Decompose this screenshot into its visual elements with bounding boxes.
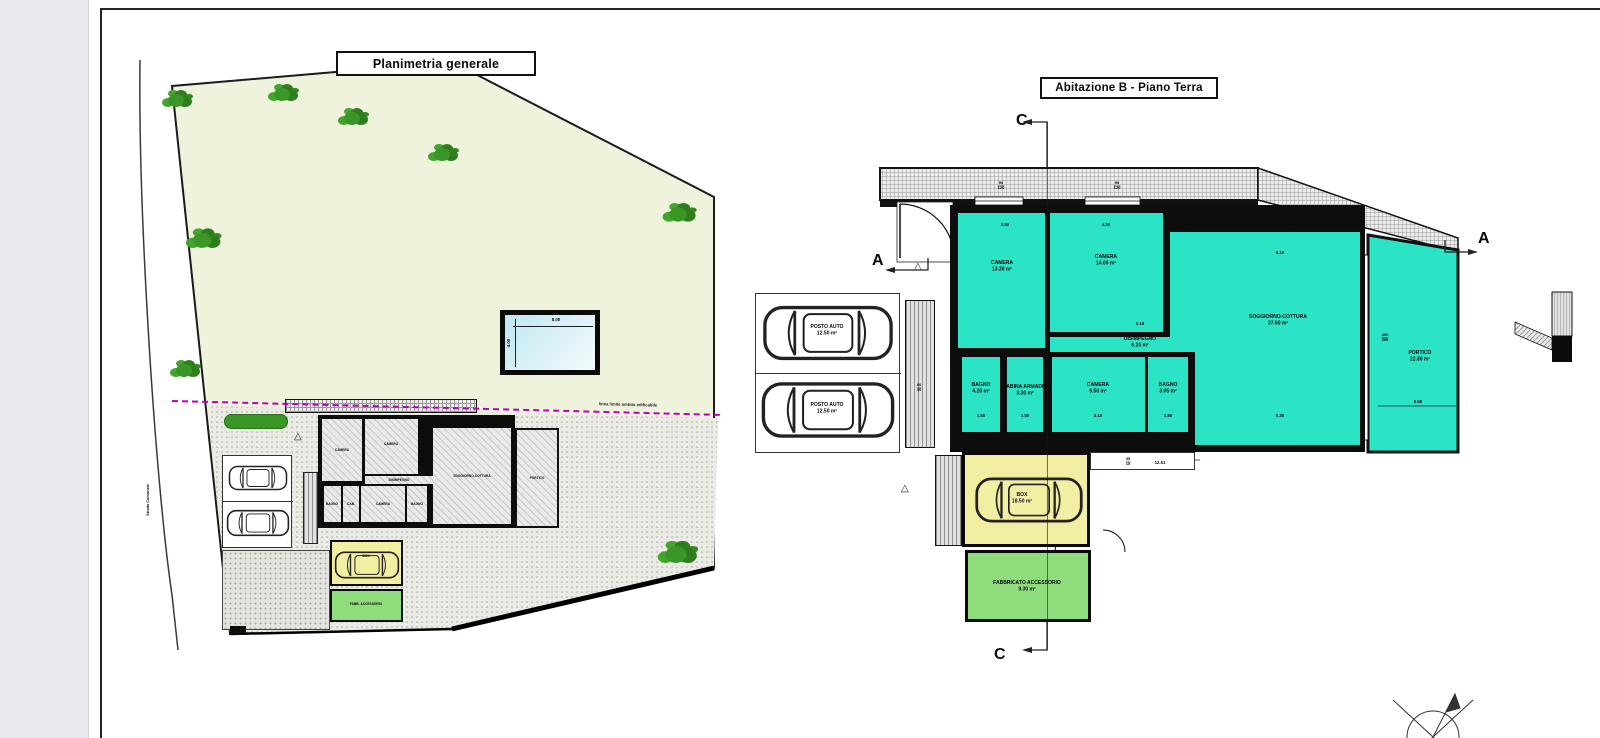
room-area: 22.80 m² [1409,356,1432,363]
mini-room-label: CAMERA [335,448,349,452]
mini-room-label: CAMERA [384,442,398,446]
compass-icon [1393,694,1473,738]
room-area: 13.30 m² [991,266,1013,273]
portico-area [1368,235,1458,452]
room-area: 9.50 m² [1087,388,1109,395]
stall-divider [223,501,293,502]
floor-plan-title-box: Abitazione B - Piano Terra [1040,77,1218,99]
mini-room-label: BAGNO [411,502,423,506]
room-label: BAGNO 3.05 m² [1159,381,1178,394]
pool-width-dim: 8.00 [552,318,560,322]
room-area: 3.30 m² [1003,390,1048,397]
tree-icon [176,364,192,377]
pool-height-dim: 4.00 [507,339,511,347]
room-label: BAGNO 4.20 m² [972,381,991,394]
room-area: 6.10 m² [1124,342,1156,349]
mini-room-label: PORTICO [530,476,545,480]
room-camera-2 [1050,213,1163,332]
room-label: CAMERA 14.00 m² [1095,253,1117,266]
pool-dim-line-h [513,326,593,327]
room-label: CAMERA 13.30 m² [991,259,1013,272]
window-dim-stack: 90 120 [998,181,1005,191]
sheet-border-top [100,8,1600,10]
portico-dim-stack: 400 300 [1382,333,1389,343]
dim-text: 40 [917,388,922,393]
entrance-arrow-icon: △ [914,262,922,272]
dim-text: 3.10 [1094,414,1102,418]
dim-text: 300 [1382,338,1389,343]
mini-room-label: CAMERA [376,502,390,506]
room-label: DISIMPEGNO 6.10 m² [1124,335,1156,348]
section-arrowhead [885,267,895,273]
hedge-icon [224,414,288,429]
mini-room-label: BAGNO [326,502,338,506]
window-dim-stack: 90 120 [1114,181,1121,191]
car-icon [226,503,290,543]
dim-text: 120 [1114,186,1121,191]
accessory-area: 9.30 m² [993,586,1061,593]
parking-label-2: POSTO AUTO 12.50 m² [811,401,844,414]
dim-text: 2.60 [1414,400,1422,404]
room-label: CAMERA 9.50 m² [1087,381,1109,394]
terrace-band [880,168,1258,200]
room-soggiorno-ext [1170,232,1195,352]
edge-fragment-railing [1552,292,1572,336]
dim-text: 5.10 [1276,251,1284,255]
parking-label-1: POSTO AUTO 12.50 m² [811,323,844,336]
step-dim-stack: 35 15 [1126,457,1131,467]
room-area: 14.00 m² [1095,260,1117,267]
mini-room-label: SOGGIORNO-COTTURA [453,474,490,478]
ramp-dim-stack: 80 40 [917,383,922,393]
box-label: BOX 18.50 m² [1012,491,1032,504]
mini-box-label: BOX [362,554,369,558]
mini-room [365,419,418,474]
mini-ramp [303,472,318,544]
room-label: CABINA ARMADIO 3.30 m² [1003,383,1048,396]
drawing-sheet: Planimetria generale [0,0,1600,738]
pool-dim-line-v [515,319,516,367]
room-area: 37.60 m² [1249,320,1307,327]
section-c-hook-bottom [1032,622,1047,650]
window-edge-strip [0,0,89,738]
sheet-border-left [100,8,102,738]
dim-text: 5.30 [1276,414,1284,418]
dim-text: 1.50 [977,414,985,418]
road-label: Strada Comunale [146,484,150,516]
box-area: 18.50 m² [1012,498,1032,505]
room-label: PORTICO 22.80 m² [1409,349,1432,362]
room-area: 4.20 m² [972,388,991,395]
tree-icon [434,148,450,161]
mini-room-label: DISIMPEGNO [389,478,410,482]
tree-icon [274,88,290,101]
wall-stub [230,626,246,635]
tree-icon [168,94,184,107]
tree-icon [666,546,687,563]
room-camera-1 [958,213,1045,348]
mini-accessory-label: FABB. ACCESSORIO [350,602,382,606]
entrance-recess [897,202,953,262]
site-plan-drawing [120,50,730,650]
room-area: 3.05 m² [1159,388,1178,395]
pool [500,310,600,375]
section-c-top: C [1016,112,1028,130]
box-ramp [935,455,962,546]
dim-text: 15 [1126,462,1131,467]
entrance-arrow-icon: △ [294,432,302,442]
edge-fragment-ground [1515,322,1552,350]
stall-divider [756,373,901,374]
tree-icon [193,233,211,248]
section-a-right: A [1478,230,1490,248]
section-arrowhead [1022,647,1032,653]
dwelling-block [950,205,1365,452]
mini-room-label: CAB. [347,502,355,506]
tree-icon [344,112,360,125]
tree-icon [669,207,687,221]
edge-fragment-base [1552,336,1572,362]
exterior-step [1090,452,1195,470]
mini-driveway [222,550,330,630]
dim-text: 3.10 [1136,322,1144,326]
dim-text: 120 [998,186,1005,191]
room-label: SOGGIORNO-COTTURA 37.60 m² [1249,313,1307,326]
car-icon [228,461,288,495]
car-icon [334,548,400,582]
road-line [140,60,178,650]
dim-text: 1.50 [1164,414,1172,418]
dim-text: 3.80 [1001,223,1009,227]
site-plan-title-box: Planimetria generale [336,51,536,76]
accessory-label: FABBRICATO ACCESSORIO 9.30 m² [993,579,1061,592]
ramp-strip [905,300,935,448]
dim-text: 12.51 [1155,461,1166,465]
section-c-hook-top [1032,122,1047,168]
dim-text: 1.50 [1021,414,1029,418]
mini-building [318,415,515,528]
dim-text: 4.20 [1102,223,1110,227]
parking-area: 12.50 m² [811,408,844,415]
site-plan-title: Planimetria generale [373,57,499,71]
entrance-arrow-icon: △ [901,484,909,494]
section-a-left: A [872,252,884,270]
section-c-bottom: C [994,646,1006,664]
section-arrowhead [1468,249,1478,255]
floor-plan-title: Abitazione B - Piano Terra [1055,82,1202,94]
parking-area: 12.50 m² [811,330,844,337]
